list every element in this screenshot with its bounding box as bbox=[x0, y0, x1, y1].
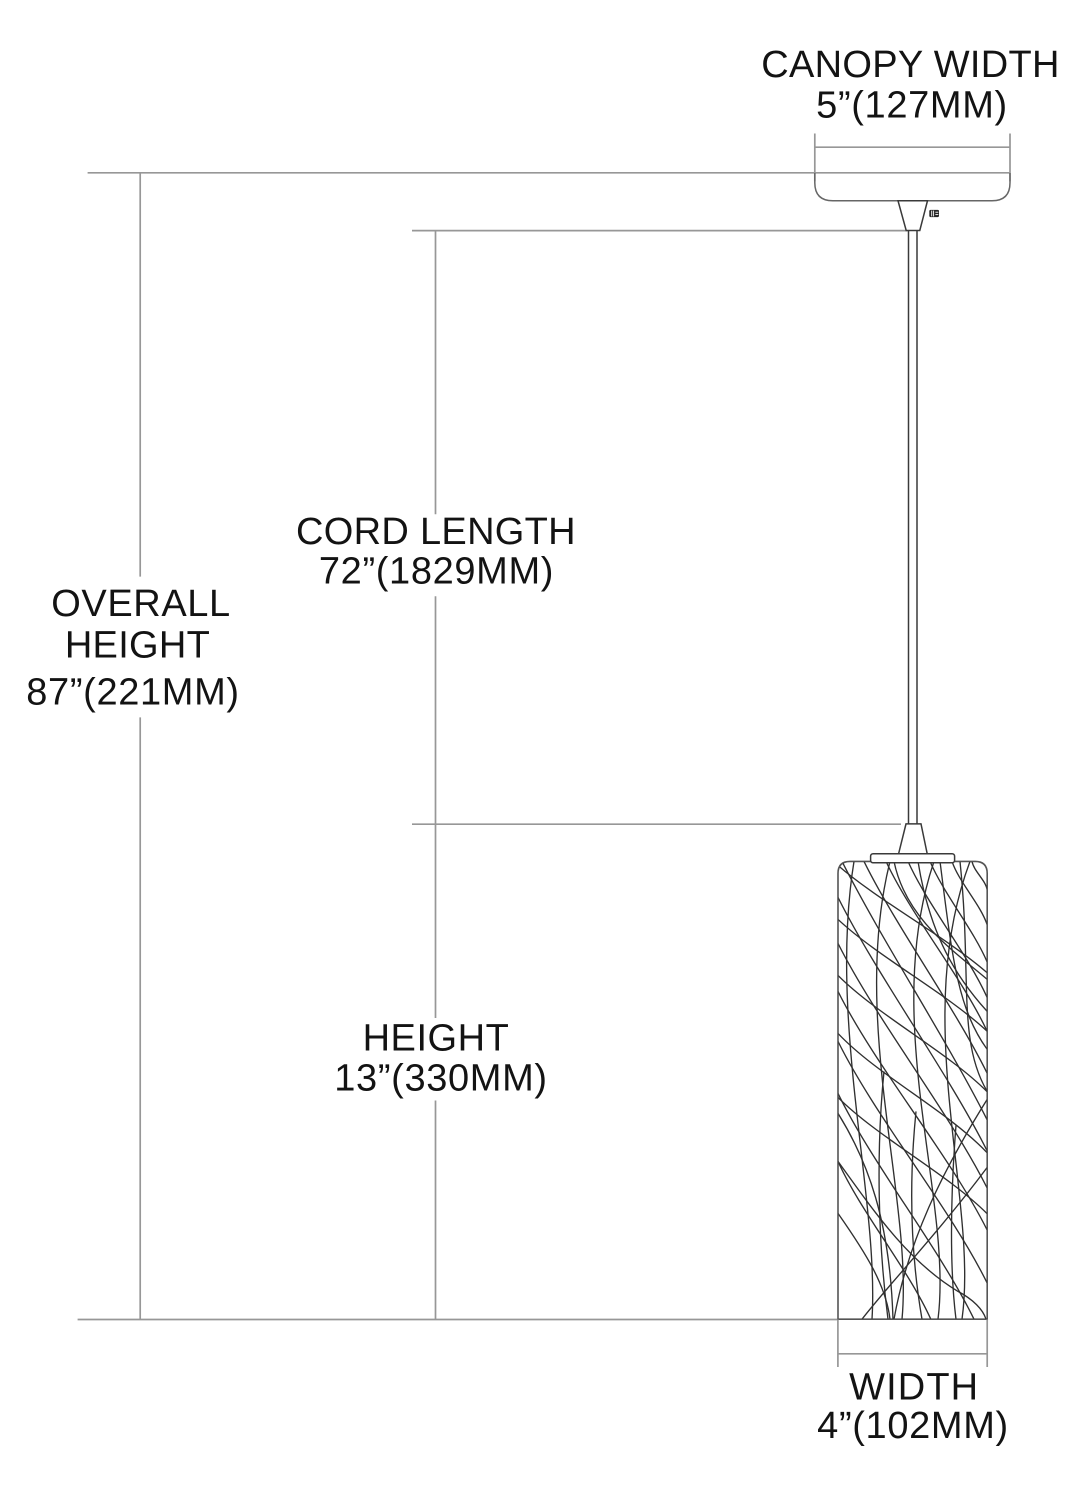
svg-text:CORD LENGTH: CORD LENGTH bbox=[296, 511, 576, 553]
svg-text:WIDTH: WIDTH bbox=[849, 1367, 979, 1409]
svg-text:OVERALL: OVERALL bbox=[51, 583, 231, 625]
svg-text:4”(102MM): 4”(102MM) bbox=[817, 1405, 1009, 1447]
svg-text:72”(1829MM): 72”(1829MM) bbox=[319, 550, 554, 592]
svg-text:87”(221MM): 87”(221MM) bbox=[26, 672, 239, 714]
svg-text:5”(127MM): 5”(127MM) bbox=[816, 85, 1008, 127]
svg-text:HEIGHT: HEIGHT bbox=[65, 624, 210, 666]
svg-text:CANOPY WIDTH: CANOPY WIDTH bbox=[761, 44, 1059, 86]
svg-text:HEIGHT: HEIGHT bbox=[363, 1017, 510, 1059]
svg-text:13”(330MM): 13”(330MM) bbox=[334, 1057, 547, 1099]
